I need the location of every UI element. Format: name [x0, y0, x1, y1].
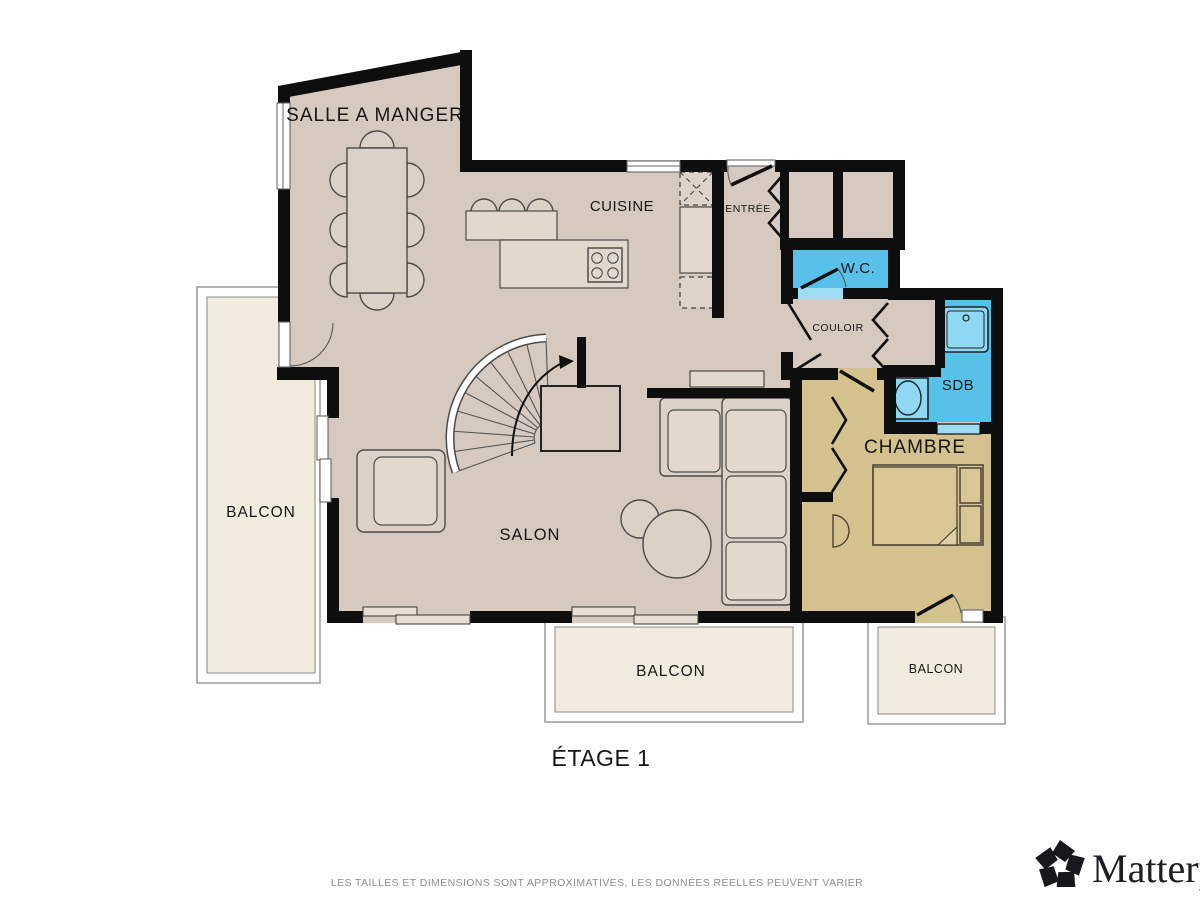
room-label-balcony-left: BALCON: [226, 504, 296, 521]
kitchen-counter-column: [680, 172, 713, 308]
matterport-logo-text: Matterport: [1092, 846, 1200, 891]
room-label-balcony-center: BALCON: [636, 663, 706, 680]
room-label-bathroom: SDB: [942, 377, 974, 394]
matterport-logo: Matterport: [1033, 840, 1200, 896]
tv-console: [690, 371, 764, 387]
shower: [943, 307, 988, 352]
floor-plan-canvas: SALLE A MANGER CUISINE ENTRÉE W.C. COULO…: [0, 0, 1200, 900]
matterport-pinwheel-icon: [1033, 840, 1090, 896]
room-label-living: SALON: [500, 526, 561, 544]
pillow: [960, 506, 981, 543]
room-label-bedroom: CHAMBRE: [864, 437, 966, 458]
bathroom-sink: [891, 378, 928, 419]
armchair: [357, 450, 445, 532]
room-label-entry: ENTRÉE: [725, 202, 771, 215]
pillow: [960, 468, 981, 503]
disclaimer-text: LES TAILLES ET DIMENSIONS SONT APPROXIMA…: [331, 876, 863, 889]
room-label-dining: SALLE A MANGER: [286, 105, 464, 126]
room-label-balcony-right: BALCON: [909, 662, 963, 676]
stair-landing: [541, 386, 620, 451]
room-label-hallway: COULOIR: [812, 322, 863, 334]
stair-newel-wall: [577, 337, 586, 388]
bed: [873, 465, 983, 545]
room-label-kitchen: CUISINE: [590, 198, 654, 215]
floor-title: ÉTAGE 1: [552, 745, 651, 771]
room-label-wc: W.C.: [841, 260, 876, 277]
bathroom-door-threshold: [937, 424, 980, 434]
dining-table: [347, 148, 407, 293]
